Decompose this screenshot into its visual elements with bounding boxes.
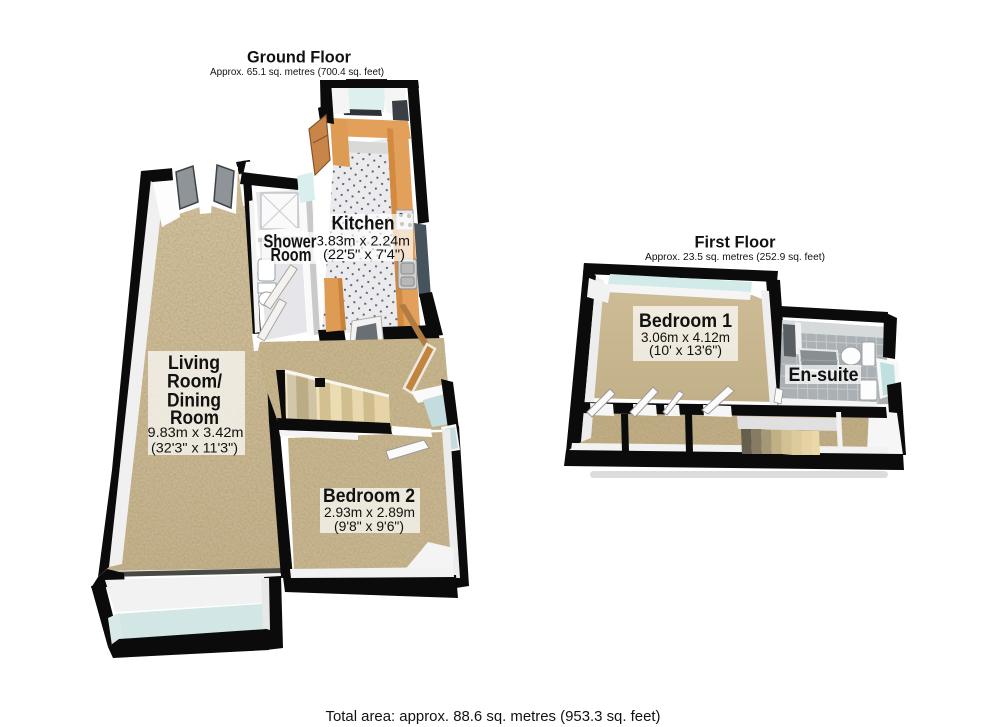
svg-text:(32'3" x 11'3"): (32'3" x 11'3") bbox=[151, 440, 238, 456]
svg-text:En-suite: En-suite bbox=[789, 365, 859, 386]
svg-text:(9'8" x 9'6"): (9'8" x 9'6") bbox=[334, 518, 404, 534]
svg-text:(10' x 13'6"): (10' x 13'6") bbox=[649, 342, 722, 358]
svg-text:9.83m x 3.42m: 9.83m x 3.42m bbox=[148, 424, 244, 440]
svg-text:Kitchen: Kitchen bbox=[332, 214, 395, 235]
svg-text:Approx. 23.5 sq. metres (252.9: Approx. 23.5 sq. metres (252.9 sq. feet) bbox=[645, 252, 825, 263]
svg-text:Room: Room bbox=[271, 245, 312, 265]
svg-text:Room/: Room/ bbox=[167, 372, 223, 393]
svg-text:(22'5" x 7'4"): (22'5" x 7'4") bbox=[323, 246, 405, 262]
svg-text:Approx. 65.1 sq. metres (700.4: Approx. 65.1 sq. metres (700.4 sq. feet) bbox=[210, 67, 384, 78]
svg-text:Total area: approx. 88.6 sq. m: Total area: approx. 88.6 sq. metres (953… bbox=[326, 708, 661, 725]
svg-text:First Floor: First Floor bbox=[695, 233, 776, 252]
svg-text:Ground Floor: Ground Floor bbox=[247, 48, 351, 67]
